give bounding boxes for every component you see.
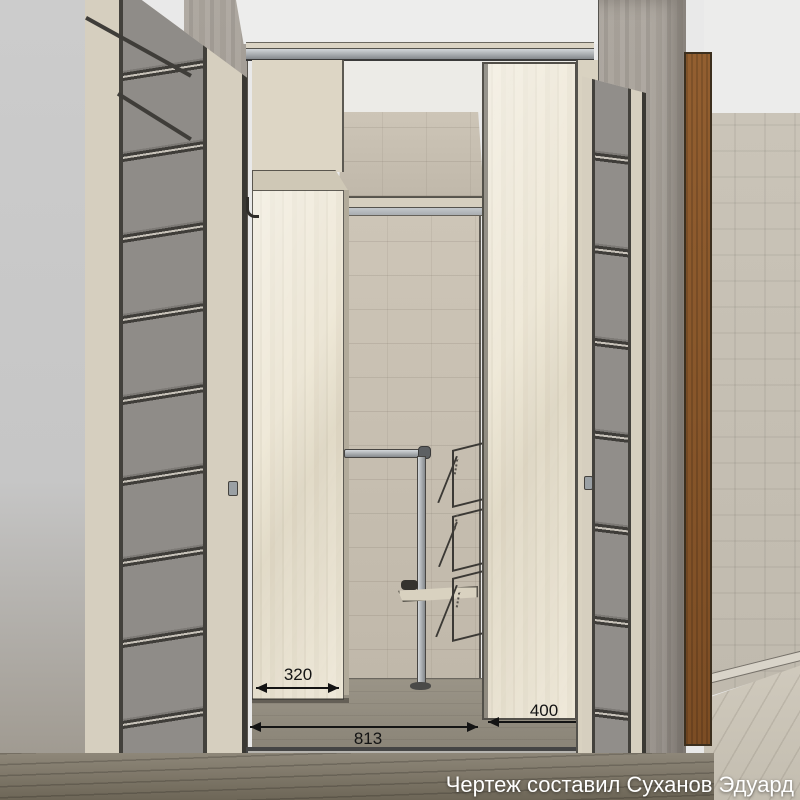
right-room-wallpaper-wall: [704, 113, 800, 698]
right-door-glass-panes: [595, 72, 628, 772]
dimension-label-813: 813: [340, 730, 396, 747]
ceiling: [236, 0, 616, 44]
opening-lintel: [246, 42, 594, 49]
right-door-handle-icon: [584, 476, 593, 490]
clothes-rail-horizontal: [344, 449, 424, 458]
dimension-arrow-320: [256, 687, 339, 689]
dimension-arrow-813: [250, 726, 478, 728]
right-door-stile-line2: [628, 72, 631, 772]
wardrobe-3d-drawing: 320 400 813 Чертеж составил Суханов Эдуа…: [0, 0, 800, 800]
inner-niche-transom: [340, 208, 482, 216]
brown-door: [684, 52, 712, 746]
left-near-wall: [0, 0, 86, 800]
left-door-glass-panes: [123, 0, 203, 776]
right-panel: [482, 62, 577, 720]
inner-niche-lintel: [338, 197, 484, 208]
right-open-door: [582, 72, 646, 772]
left-cabinet-door: [252, 190, 344, 700]
coat-hook-icon: [246, 197, 259, 218]
back-wall-upper: [338, 112, 484, 197]
wire-basket: [452, 442, 484, 508]
left-door-edge: [242, 0, 247, 776]
left-door-handle-icon: [228, 481, 238, 496]
shelf-knob-icon: [401, 580, 418, 590]
left-cabinet-base-shadow: [252, 698, 349, 703]
right-door-edge: [642, 72, 646, 772]
left-cabinet-side-return: [344, 190, 349, 695]
left-cabinet-top-shelf: [252, 170, 349, 192]
dimension-label-320: 320: [270, 666, 326, 683]
left-open-door: [85, 0, 247, 776]
left-cabinet-upper: [252, 60, 344, 172]
left-door-stile-line2: [203, 0, 207, 776]
right-room-white-wall: [704, 0, 800, 113]
author-caption: Чертеж составил Суханов Эдуард: [446, 772, 794, 798]
dimension-label-400: 400: [516, 702, 572, 719]
clothes-rail-post: [417, 456, 426, 684]
clothes-rail-foot: [410, 682, 431, 690]
